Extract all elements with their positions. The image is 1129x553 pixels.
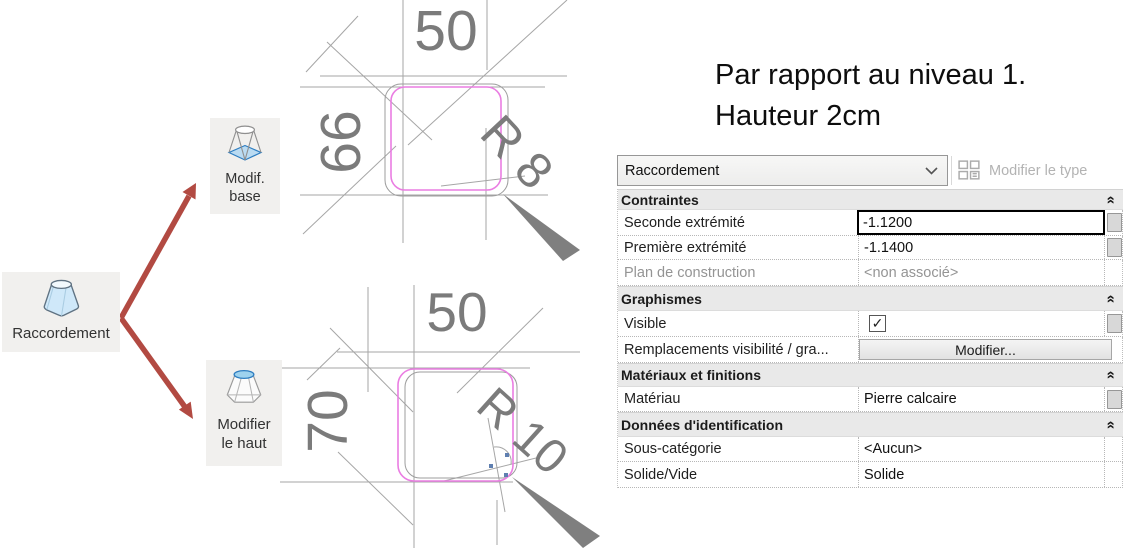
arrow-to-modif-base	[121, 196, 189, 318]
modifier-haut-label-line2: le haut	[217, 434, 270, 453]
row-solide-vide: Solide/Vide Solide	[618, 462, 1123, 488]
collapse-icon[interactable]	[1102, 371, 1117, 379]
group-header-donnees[interactable]: Données d'identification	[618, 412, 1123, 437]
group-header-graphismes[interactable]: Graphismes	[618, 286, 1123, 311]
group-title: Données d'identification	[618, 417, 783, 433]
row-visible: Visible	[618, 311, 1123, 337]
group-title: Contraintes	[618, 192, 699, 208]
modif-base-label: Modif. base	[225, 170, 265, 206]
associate-param-button[interactable]	[1107, 213, 1122, 232]
row-premiere-extremite: Première extrémité -1.1400	[618, 236, 1123, 260]
row-label: Première extrémité	[618, 236, 859, 259]
associate-param-cell	[1105, 462, 1123, 487]
modifier-haut-label-line1: Modifier	[217, 415, 270, 434]
properties-grid: Contraintes Seconde extrémité -1.1200 Pr…	[617, 189, 1123, 488]
flow-arrows	[121, 196, 189, 407]
edit-type-icon	[957, 158, 982, 183]
associate-param-button[interactable]	[1107, 238, 1122, 257]
type-selector-combobox[interactable]: Raccordement	[617, 155, 948, 186]
solide-vide-value[interactable]: Solide	[859, 462, 1105, 487]
frustum-blue-top-icon	[221, 363, 267, 409]
type-selector-value: Raccordement	[618, 163, 925, 179]
dim-top-width: 50	[415, 6, 477, 56]
dim-bottom-width: 50	[426, 288, 488, 336]
associate-param-button[interactable]	[1107, 390, 1122, 409]
seconde-extremite-input[interactable]: -1.1200	[857, 210, 1105, 235]
arrow-to-modifier-haut	[121, 318, 185, 407]
group-header-contraintes[interactable]: Contraintes	[618, 189, 1123, 210]
note-line1: Par rapport au niveau 1.	[715, 55, 1026, 96]
modifier-le-haut-button[interactable]: Modifier le haut	[206, 360, 282, 466]
row-label: Remplacements visibilité / gra...	[618, 337, 859, 362]
raccordement-button[interactable]: Raccordement	[2, 272, 120, 352]
row-seconde-extremite: Seconde extrémité -1.1200	[618, 210, 1123, 236]
dim-bottom-height: 70	[298, 381, 358, 461]
modif-base-label-line1: Modif.	[225, 170, 265, 188]
visible-value-cell	[859, 311, 1105, 336]
materiau-value[interactable]: Pierre calcaire	[859, 387, 1105, 411]
frustum-blue-base-icon	[223, 121, 267, 165]
group-header-materiaux[interactable]: Matériaux et finitions	[618, 363, 1123, 387]
chevron-down-icon	[925, 167, 938, 175]
modifier-button[interactable]: Modifier...	[859, 339, 1112, 360]
row-materiau: Matériau Pierre calcaire	[618, 387, 1123, 412]
row-label: Visible	[618, 311, 859, 336]
group-title: Matériaux et finitions	[618, 367, 761, 383]
row-label: Seconde extrémité	[618, 210, 859, 235]
row-plan-construction: Plan de construction <non associé>	[618, 260, 1123, 286]
row-label: Sous-catégorie	[618, 437, 859, 461]
premiere-extremite-input[interactable]: -1.1400	[859, 236, 1105, 259]
note-line2: Hauteur 2cm	[715, 96, 1026, 137]
row-label: Plan de construction	[618, 260, 859, 285]
dim-top-height: 66	[311, 102, 371, 182]
visible-checkbox[interactable]	[869, 315, 886, 332]
frustum-solid-icon	[38, 275, 84, 321]
collapse-icon[interactable]	[1102, 420, 1117, 428]
associate-param-cell	[1105, 437, 1123, 461]
associate-param-button[interactable]	[1107, 314, 1122, 333]
edit-type-button[interactable]: Modifier le type	[957, 156, 1123, 185]
modif-base-label-line2: base	[225, 188, 265, 206]
row-label: Solide/Vide	[618, 462, 859, 487]
group-title: Graphismes	[618, 291, 702, 307]
sous-categorie-value[interactable]: <Aucun>	[859, 437, 1105, 461]
row-remplacements: Remplacements visibilité / gra... Modifi…	[618, 337, 1123, 363]
annotation-note: Par rapport au niveau 1. Hauteur 2cm	[715, 55, 1026, 137]
associate-param-cell	[1105, 260, 1123, 285]
collapse-icon[interactable]	[1102, 195, 1117, 203]
row-sous-categorie: Sous-catégorie <Aucun>	[618, 437, 1123, 462]
raccordement-label: Raccordement	[12, 325, 110, 342]
screenshot-root: 50 66 R 8 50 70 R 10 Raccordement Modif.…	[0, 0, 1129, 553]
modifier-le-haut-label: Modifier le haut	[217, 415, 270, 453]
plan-construction-value: <non associé>	[859, 260, 1105, 285]
toolbar-divider	[951, 156, 952, 185]
collapse-icon[interactable]	[1102, 294, 1117, 302]
modif-base-button[interactable]: Modif. base	[210, 118, 280, 214]
row-label: Matériau	[618, 387, 859, 411]
edit-type-label: Modifier le type	[989, 163, 1087, 179]
